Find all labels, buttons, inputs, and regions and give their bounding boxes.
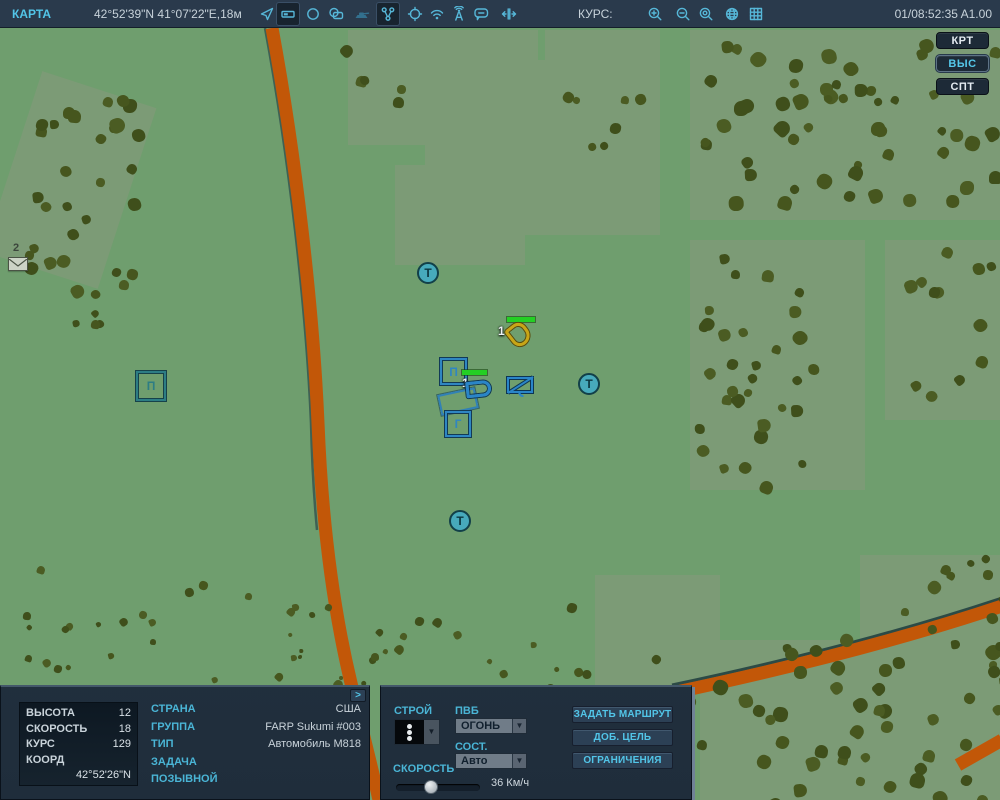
roe-label: ПВБ xyxy=(455,705,479,717)
tree xyxy=(396,85,405,94)
tree xyxy=(695,424,705,434)
enemy-unit-count: 1 xyxy=(498,325,505,337)
coord-label: КООРД xyxy=(26,753,64,767)
waypoint-marker[interactable]: Т xyxy=(417,262,439,284)
speed-slider[interactable] xyxy=(396,784,480,791)
tree xyxy=(901,607,909,615)
layer-button-satellite[interactable]: СПТ xyxy=(936,78,989,95)
tree xyxy=(22,611,30,619)
mission-clock: 01/08:52:35 A1.00 xyxy=(895,7,992,21)
coord-value: 42°52'26"N xyxy=(76,768,131,782)
chevron-down-icon: ▼ xyxy=(424,720,439,744)
altitude-value: 12 xyxy=(119,706,131,720)
tree xyxy=(960,181,974,195)
course-label: КУРС xyxy=(26,737,55,751)
detail-row: ТИП Автомобиль М818 xyxy=(151,737,361,751)
telemetry-row: КУРС 129 xyxy=(26,737,131,751)
panel-edge-strip xyxy=(692,687,695,800)
tree xyxy=(989,171,1000,184)
zoom-out-icon[interactable] xyxy=(674,5,692,23)
own-health-bar xyxy=(462,370,487,375)
message-envelope-icon[interactable] xyxy=(8,257,28,271)
course-label: КУРС: xyxy=(578,7,613,21)
tree xyxy=(945,194,959,208)
task-label: ЗАДАЧА xyxy=(151,755,197,769)
tree xyxy=(982,569,993,580)
unit-symbol-structure[interactable]: П xyxy=(136,371,166,401)
chevron-down-icon: ▼ xyxy=(512,719,526,733)
unit-info-panel: > ВЫСОТА 12 СКОРОСТЬ 18 КУРС 129 КООРД 4… xyxy=(0,685,370,800)
unit-list-button[interactable] xyxy=(276,2,300,26)
antitank-unit-symbol[interactable] xyxy=(505,375,537,399)
formation-label: СТРОЙ xyxy=(394,705,432,717)
zoom-in-icon[interactable] xyxy=(646,5,664,23)
detail-row: ГРУППА FARP Sukumi #003 xyxy=(151,720,361,734)
tree xyxy=(950,128,964,142)
tree xyxy=(950,639,960,649)
tree xyxy=(392,96,404,108)
tree xyxy=(126,268,138,280)
set-route-button[interactable]: ЗАДАТЬ МАРШРУТ xyxy=(572,706,673,723)
pan-adjust-icon[interactable] xyxy=(500,5,518,23)
type-value: Автомобиль М818 xyxy=(268,737,361,751)
column-formation-icon xyxy=(395,720,424,744)
unit-symbol-g[interactable]: Г xyxy=(445,411,471,437)
telemetry-row: СКОРОСТЬ 18 xyxy=(26,722,131,736)
callsign-label: ПОЗЫВНОЙ xyxy=(151,772,217,786)
command-panel: СТРОЙ ▼ ПВБ ОГОНЬ ▼ СОСТ. Авто ▼ СКОРОСТ… xyxy=(380,685,692,800)
restrictions-button[interactable]: ОГРАНИЧЕНИЯ xyxy=(572,752,673,769)
waypoint-marker[interactable]: Т xyxy=(578,373,600,395)
tree xyxy=(371,653,379,661)
tree xyxy=(762,269,775,282)
tree xyxy=(704,305,714,315)
unit-strip-icon xyxy=(279,5,297,23)
tree xyxy=(790,405,803,418)
telemetry-row: ВЫСОТА 12 xyxy=(26,706,131,720)
app-title: КАРТА xyxy=(12,7,51,21)
expand-panel-button[interactable]: > xyxy=(350,689,366,702)
message-count-badge: 2 xyxy=(13,243,19,254)
detail-row: СТРАНА США xyxy=(151,702,361,716)
grid-icon[interactable] xyxy=(747,5,765,23)
altitude-label: ВЫСОТА xyxy=(26,706,75,720)
unit-details: СТРАНА США ГРУППА FARP Sukumi #003 ТИП А… xyxy=(151,702,361,786)
vehicle-icon[interactable] xyxy=(353,5,371,23)
cursor-coordinates: 42°52'39"N 41°07'22"E,18м xyxy=(94,7,242,21)
state-label: СОСТ. xyxy=(455,741,487,753)
enemy-health-bar xyxy=(507,317,535,322)
add-target-button[interactable]: ДОБ. ЦЕЛЬ xyxy=(572,729,673,746)
layer-button-map[interactable]: КРТ xyxy=(936,32,989,49)
route-network-icon xyxy=(379,5,397,23)
tree xyxy=(855,84,868,97)
layers-icon[interactable] xyxy=(327,5,345,23)
formation-dropdown[interactable]: ▼ xyxy=(394,719,440,745)
chat-icon[interactable] xyxy=(472,5,490,23)
course-value: 129 xyxy=(113,737,131,751)
speed-slider-knob[interactable] xyxy=(424,780,438,794)
type-label: ТИП xyxy=(151,737,174,751)
detail-row: ПОЗЫВНОЙ xyxy=(151,772,361,786)
chevron-down-icon: ▼ xyxy=(512,754,526,768)
zoom-reset-icon[interactable] xyxy=(697,5,715,23)
country-value: США xyxy=(336,702,361,716)
waypoint-marker[interactable]: Т xyxy=(449,510,471,532)
tree xyxy=(729,195,744,210)
speed-value: 18 xyxy=(119,722,131,736)
circle-tool-icon[interactable] xyxy=(304,5,322,23)
speed-slider-label: СКОРОСТЬ xyxy=(393,763,454,775)
telemetry-box: ВЫСОТА 12 СКОРОСТЬ 18 КУРС 129 КООРД 42°… xyxy=(19,702,138,786)
group-value: FARP Sukumi #003 xyxy=(265,720,361,734)
group-label: ГРУППА xyxy=(151,720,195,734)
globe-icon[interactable] xyxy=(723,5,741,23)
speed-slider-value: 36 Км/ч xyxy=(491,777,529,789)
wifi-icon[interactable] xyxy=(428,5,446,23)
tree xyxy=(621,95,630,104)
route-mode-button[interactable] xyxy=(376,2,400,26)
layer-button-altitude[interactable]: ВЫС xyxy=(936,55,989,72)
cursor-tool-icon[interactable] xyxy=(258,5,276,23)
tree xyxy=(53,664,62,673)
roe-dropdown[interactable]: ОГОНЬ ▼ xyxy=(455,718,527,734)
telemetry-row: 42°52'26"N xyxy=(26,768,131,782)
detail-row: ЗАДАЧА xyxy=(151,755,361,769)
country-label: СТРАНА xyxy=(151,702,196,716)
top-toolbar: КАРТА 42°52'39"N 41°07'22"E,18м КУРС: xyxy=(0,0,1000,28)
crosshair-icon[interactable] xyxy=(406,5,424,23)
roe-value: ОГОНЬ xyxy=(456,719,512,733)
telemetry-row: КООРД xyxy=(26,753,131,767)
state-dropdown[interactable]: Авто ▼ xyxy=(455,753,527,769)
antenna-icon[interactable] xyxy=(450,5,468,23)
speed-label: СКОРОСТЬ xyxy=(26,722,87,736)
state-value: Авто xyxy=(456,754,512,768)
